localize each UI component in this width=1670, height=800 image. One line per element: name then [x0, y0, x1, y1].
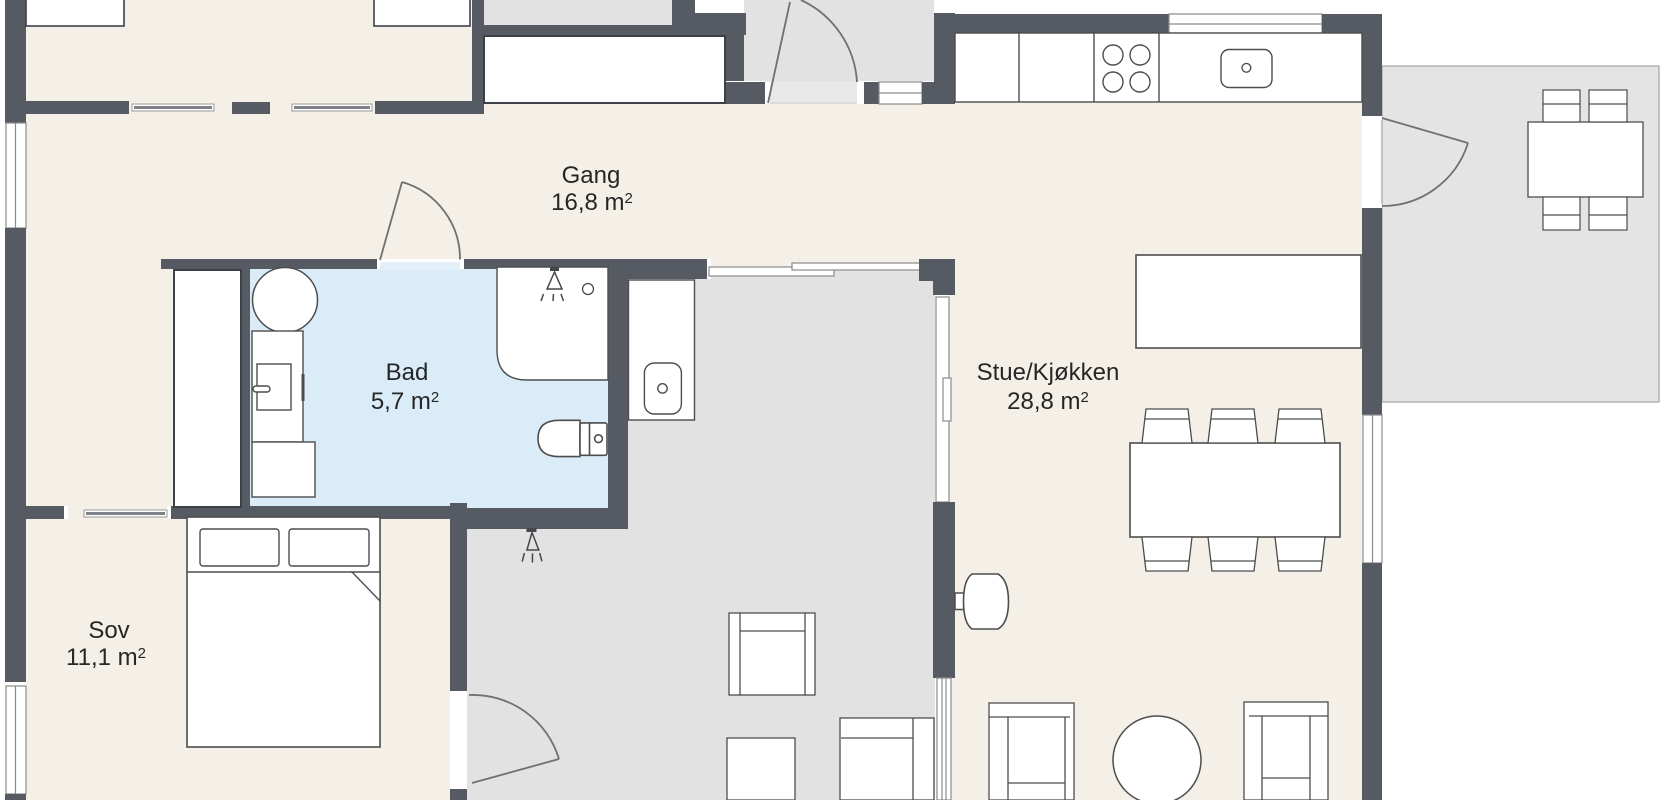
- svg-text:Gang: Gang: [562, 162, 621, 189]
- svg-text:28,8 m2: 28,8 m2: [1007, 388, 1089, 415]
- svg-text:Sov: Sov: [88, 617, 129, 644]
- svg-text:Bad: Bad: [386, 359, 429, 386]
- svg-text:16,8 m2: 16,8 m2: [551, 189, 633, 216]
- svg-text:5,7 m2: 5,7 m2: [371, 388, 439, 415]
- svg-text:Stue/Kjøkken: Stue/Kjøkken: [977, 359, 1120, 386]
- svg-text:11,1 m2: 11,1 m2: [66, 644, 146, 671]
